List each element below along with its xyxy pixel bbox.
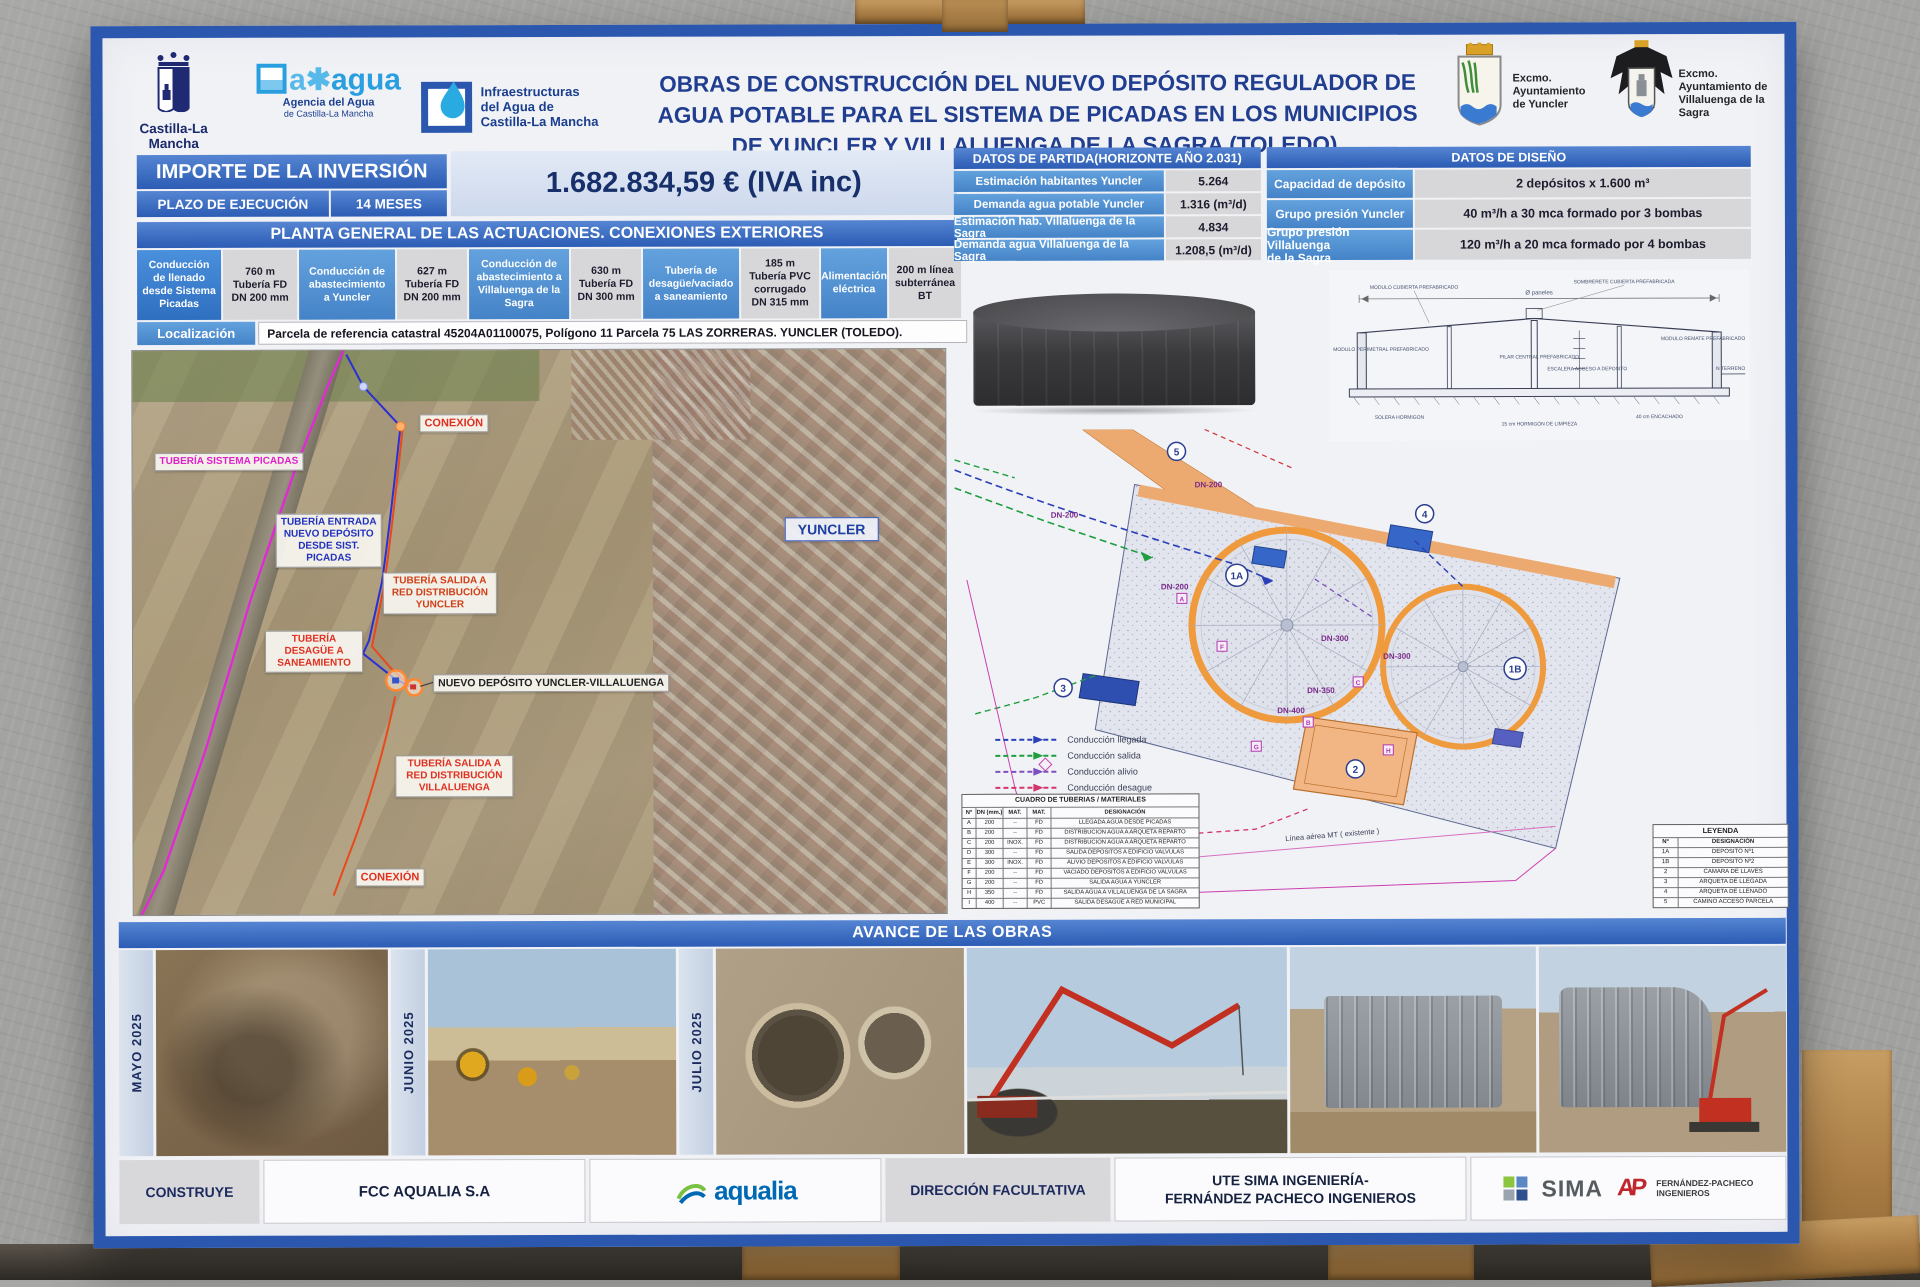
satellite-map: TUBERÍA SISTEMA PICADAS CONEXIÓN TUBERÍA… xyxy=(131,348,947,916)
footer-bar: CONSTRUYE FCC AQUALIA S.A aqualia DIRECC… xyxy=(119,1156,1786,1224)
svg-text:A: A xyxy=(1180,596,1185,603)
importe-amount: 1.682.834,59 € (IVA inc) xyxy=(451,150,957,216)
progress-photo-4 xyxy=(967,947,1288,1154)
progress-photo-1 xyxy=(156,949,389,1156)
svg-text:SOMBRERETE CUBIERTA PREFABRICA: SOMBRERETE CUBIERTA PREFABRICADA xyxy=(1574,279,1676,285)
infra-droplet-icon xyxy=(421,79,475,133)
planta-cell: Conducción de abastecimiento a Yuncler xyxy=(299,249,395,319)
footer-logos: SIMA AP FERNÁNDEZ-PACHECO INGENIEROS xyxy=(1470,1156,1786,1221)
clm-logo: Castilla-La Mancha xyxy=(118,48,228,152)
map-label-salida-yuncler: TUBERÍA SALIDA A RED DISTRIBUCIÓN YUNCLE… xyxy=(383,572,497,614)
easel-clamp-block xyxy=(942,0,1008,32)
planta-cell: 760 m Tubería FD DN 200 mm xyxy=(223,250,297,320)
planta-cell: Conducción de llenado desde Sistema Pica… xyxy=(137,250,221,320)
agua-logo-sub2: de Castilla-La Mancha xyxy=(255,108,403,118)
svg-text:Conducción salida: Conducción salida xyxy=(1067,750,1141,760)
floor-shadow xyxy=(0,1244,1920,1280)
progress-photo-2 xyxy=(428,949,677,1156)
aqualia-swoosh-icon xyxy=(674,1177,708,1205)
svg-text:Conducción alivio: Conducción alivio xyxy=(1067,766,1138,776)
footer-aqualia-logo: aqualia xyxy=(589,1158,881,1223)
planta-cell: Conducción de abastecimiento a Villaluen… xyxy=(469,249,569,319)
progress-photos: MAYO 2025 JUNIO 2025 JULIO 2025 xyxy=(119,946,1787,1156)
crane-machine xyxy=(1539,946,1787,1153)
tank-render-shadow xyxy=(970,405,1258,416)
infra-logo: Infraestructuras del Agua de Castilla-La… xyxy=(420,61,626,152)
svg-text:DN-400: DN-400 xyxy=(1277,706,1305,715)
dirt-foreground xyxy=(1290,1111,1536,1153)
importe-header: IMPORTE DE LA INVERSIÓN xyxy=(137,154,447,189)
month-label-junio: JUNIO 2025 xyxy=(391,949,426,1155)
planta-cell: Alimentación eléctrica xyxy=(821,248,887,318)
fp-wordmark: FERNÁNDEZ-PACHECO INGENIEROS xyxy=(1656,1178,1753,1198)
svg-text:SOLERA HORMIGON: SOLERA HORMIGON xyxy=(1375,415,1425,421)
footer-construye: CONSTRUYE xyxy=(119,1160,259,1224)
dp-row-label: Demanda agua Villaluenga de la Sagra xyxy=(954,239,1164,261)
progress-photo-6 xyxy=(1539,946,1787,1153)
svg-text:ESCALERA ACCESO A DEPOSITO: ESCALERA ACCESO A DEPOSITO xyxy=(1547,366,1627,372)
svg-text:MODULO CUBIERTA PREFABRICADO: MODULO CUBIERTA PREFABRICADO xyxy=(1370,285,1459,291)
map-label-conexion-top: CONEXIÓN xyxy=(419,414,488,432)
svg-text:15 cm HORMIGÓN DE LIMPIEZA: 15 cm HORMIGÓN DE LIMPIEZA xyxy=(1502,420,1578,427)
dp-row-value: 4.834 xyxy=(1166,216,1261,237)
svg-text:40 cm ENCACHADO: 40 cm ENCACHADO xyxy=(1636,414,1683,420)
svg-text:DN-300: DN-300 xyxy=(1383,652,1411,661)
dp-row-value: 1.316 (m³/d) xyxy=(1166,193,1261,214)
svg-text:DN-350: DN-350 xyxy=(1307,686,1335,695)
month-label-mayo: MAYO 2025 xyxy=(119,950,154,1156)
cuadro-tuberias-table: CUADRO DE TUBERIAS / MATERIALES NºDN (mm… xyxy=(961,793,1199,909)
leyenda-title: LEYENDA xyxy=(1654,825,1788,837)
yuncler-coat-of-arms xyxy=(1450,43,1508,137)
planta-cell: 630 m Tubería FD DN 300 mm xyxy=(571,249,641,319)
planta-cell: Tubería de desagüe/vaciado a saneamiento xyxy=(643,249,739,319)
footer-empresa: FCC AQUALIA S.A xyxy=(263,1159,585,1224)
plazo-value: 14 MESES xyxy=(331,190,447,216)
poster-board: Castilla-La Mancha a✱agua Agencia del Ag… xyxy=(90,22,1799,1248)
datos-diseno-title: DATOS DE DISEÑO xyxy=(1267,146,1751,168)
dp-row-value: 5.264 xyxy=(1166,170,1261,191)
agua-logo-prefix: a✱ xyxy=(289,68,331,94)
dd-row-value: 120 m³/h a 20 mca formado por 4 bombas xyxy=(1415,229,1751,260)
dp-row-label: Demanda agua potable Yuncler xyxy=(954,193,1164,215)
svg-text:1A: 1A xyxy=(1230,571,1243,582)
progress-photo-5 xyxy=(1290,946,1537,1153)
cuadro-title: CUADRO DE TUBERIAS / MATERIALES xyxy=(962,794,1198,807)
datos-partida-title: DATOS DE PARTIDA(HORIZONTE AÑO 2.031) xyxy=(954,147,1261,169)
localizacion-label: Localización xyxy=(137,322,255,345)
tank-section-drawing: Ø paneles N TERRENO SOMBRERETE CUBIERTA … xyxy=(1329,270,1749,441)
svg-text:N TERRENO: N TERRENO xyxy=(1716,366,1745,372)
svg-text:PILAR CENTRAL PREFABRICADO: PILAR CENTRAL PREFABRICADO xyxy=(1499,354,1579,360)
villaluenga-coat-of-arms xyxy=(1608,38,1674,136)
sima-logo-squares xyxy=(1503,1176,1527,1200)
footer-direccion: DIRECCIÓN FACULTATIVA xyxy=(885,1158,1110,1223)
svg-text:DN-200: DN-200 xyxy=(1161,582,1189,591)
svg-text:DN-300: DN-300 xyxy=(1321,634,1349,643)
agua-logo: a✱agua Agencia del Agua de Castilla-La M… xyxy=(255,63,403,151)
svg-text:5: 5 xyxy=(1174,447,1180,458)
planta-cell: 185 m Tubería PVC corrugado DN 315 mm xyxy=(741,248,819,318)
villaluenga-arms-label: Excmo. Ayuntamiento de Villaluenga de la… xyxy=(1679,68,1783,120)
svg-text:4: 4 xyxy=(1422,510,1428,521)
map-pipelines xyxy=(132,349,946,915)
map-label-nuevo-deposito: NUEVO DEPÓSITO YUNCLER-VILLALUENGA xyxy=(433,674,669,693)
infra-logo-label: Infraestructuras del Agua de Castilla-La… xyxy=(481,83,599,128)
leyenda-table: LEYENDA NºDESIGNACIÓN 1ADEPOSITO Nº1 1BD… xyxy=(1652,824,1788,908)
plan-tank-1a xyxy=(1192,530,1382,720)
agua-square-icon xyxy=(256,64,286,94)
svg-text:B: B xyxy=(1306,720,1311,727)
planta-header: PLANTA GENERAL DE LAS ACTUACIONES. CONEX… xyxy=(137,220,957,248)
clm-shield-icon xyxy=(150,50,196,112)
dd-row-label: Grupo presión Yuncler xyxy=(1267,200,1413,228)
svg-text:DN-200: DN-200 xyxy=(1195,480,1223,489)
plan-legend: Conducción llegada Conducción salida Con… xyxy=(995,734,1152,792)
avance-header: AVANCE DE LAS OBRAS xyxy=(119,918,1786,948)
dp-row-label: Estimación habitantes Yuncler xyxy=(954,170,1164,192)
easel-leg-right xyxy=(1328,1240,1474,1280)
dd-row-value: 2 depósitos x 1.600 m³ xyxy=(1415,169,1751,198)
tank-render xyxy=(964,287,1264,418)
planta-cell: 627 m Tubería FD DN 200 mm xyxy=(397,249,467,319)
svg-text:MODULO PERIMETRAL PREFABRICADO: MODULO PERIMETRAL PREFABRICADO xyxy=(1333,347,1429,353)
svg-text:Conducción desague: Conducción desague xyxy=(1067,782,1152,792)
agua-logo-sub1: Agencia del Agua xyxy=(255,96,403,108)
svg-text:G: G xyxy=(1254,744,1259,751)
svg-text:2: 2 xyxy=(1353,765,1359,776)
agua-logo-word: agua xyxy=(331,67,401,93)
svg-text:1B: 1B xyxy=(1509,664,1522,675)
fp-monogram: AP xyxy=(1616,1174,1644,1202)
datos-diseno-table: DATOS DE DISEÑO Capacidad de depósito2 d… xyxy=(1267,146,1751,260)
svg-text:Conducción llegada: Conducción llegada xyxy=(1067,734,1146,744)
dp-row-value: 1.208,5 (m³/d) xyxy=(1166,239,1261,260)
svg-text:DN-200: DN-200 xyxy=(1051,511,1079,520)
tank-walls xyxy=(1324,996,1501,1108)
svg-text:H: H xyxy=(1386,748,1391,755)
concrete-pump-boom xyxy=(967,947,1288,1154)
planta-cells: Conducción de llenado desde Sistema Pica… xyxy=(137,248,957,320)
plazo-label: PLAZO DE EJECUCIÓN xyxy=(137,191,329,218)
svg-text:3: 3 xyxy=(1060,684,1066,695)
map-label-salida-villaluenga: TUBERÍA SALIDA A RED DISTRIBUCIÓN VILLAL… xyxy=(395,755,513,797)
footer-ute: UTE SIMA INGENIERÍA- FERNÁNDEZ PACHECO I… xyxy=(1114,1157,1466,1222)
yuncler-arms-label: Excmo. Ayuntamiento de Yuncler xyxy=(1513,72,1605,111)
plan-structure xyxy=(1492,728,1523,747)
plan-linea-aerea-label: Línea aérea MT ( existente ) xyxy=(1285,826,1380,843)
dd-row-label: Grupo presión Villaluenga de la Sagra xyxy=(1267,230,1413,260)
datos-partida-table: DATOS DE PARTIDA(HORIZONTE AÑO 2.031) Es… xyxy=(954,147,1261,261)
map-label-town-yuncler: YUNCLER xyxy=(785,517,879,541)
svg-text:C: C xyxy=(1356,680,1361,687)
localizacion-value: Parcela de referencia catastral 45204A01… xyxy=(258,320,967,345)
map-label-entrada: TUBERÍA ENTRADA NUEVO DEPÓSITO DESDE SIS… xyxy=(276,513,382,567)
progress-photo-3 xyxy=(716,948,965,1155)
dd-row-value: 40 m³/h a 30 mca formado por 3 bombas xyxy=(1415,199,1751,228)
dd-row-label: Capacidad de depósito xyxy=(1267,170,1413,198)
aqualia-wordmark: aqualia xyxy=(714,1175,797,1206)
month-label-julio: JULIO 2025 xyxy=(679,949,714,1155)
svg-text:F: F xyxy=(1220,644,1224,651)
map-label-conexion-bottom: CONEXIÓN xyxy=(356,868,425,886)
svg-text:MODULO REMATE PREFABRICADO: MODULO REMATE PREFABRICADO xyxy=(1661,336,1745,342)
sima-wordmark: SIMA xyxy=(1541,1175,1603,1202)
svg-text:Ø paneles: Ø paneles xyxy=(1525,290,1552,296)
dp-row-label: Estimación hab. Villaluenga de la Sagra xyxy=(954,216,1164,238)
clm-logo-label: Castilla-La Mancha xyxy=(119,121,229,151)
map-label-desague: TUBERÍA DESAGÜE A SANEAMIENTO xyxy=(265,631,363,673)
map-label-sistema-picadas: TUBERÍA SISTEMA PICADAS xyxy=(155,453,304,471)
planta-cell: 200 m línea subterránea BT xyxy=(889,248,961,318)
